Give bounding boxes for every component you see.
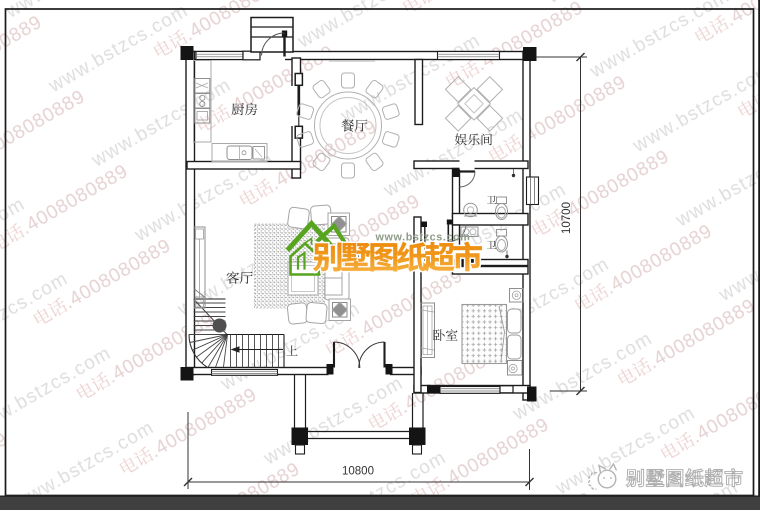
svg-text:10800: 10800 — [342, 466, 374, 478]
svg-text:10700: 10700 — [561, 202, 573, 234]
